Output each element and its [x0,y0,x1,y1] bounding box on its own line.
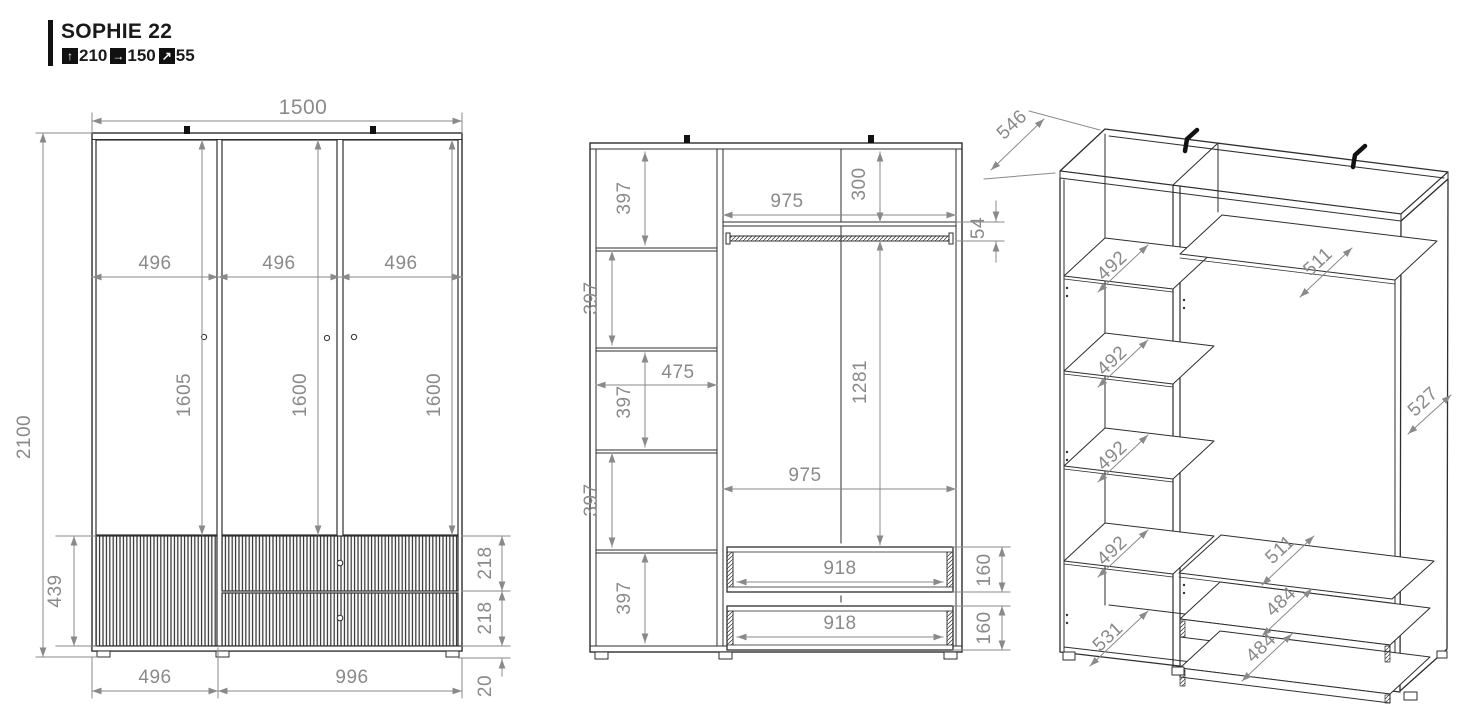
dim-drawer-front-1: 218 [475,546,496,579]
dim-compartment-4: 397 [581,483,602,516]
dim-top-shelf-drop: 300 [849,167,870,200]
drawer-knob [337,560,343,566]
drawer-knob [337,615,343,621]
isometric-view: 546 492 492 492 492 531 511 511 484 484 … [984,106,1451,703]
internal-view: 397 397 397 397 397 475 975 300 54 1281 … [581,135,1010,659]
drawer-slide [947,552,953,587]
foot [1437,651,1447,658]
shelf [596,248,717,251]
dim-door-width-1: 496 [138,253,171,274]
front-view: 1500 2100 496 496 496 1605 1600 1600 439… [14,96,510,698]
fluted-panel-left [96,536,217,646]
wall-bracket-icon [370,126,376,134]
shelf [596,348,717,351]
dim-door-width-3: 496 [384,253,417,274]
dim-drawer-width-1: 918 [823,558,856,579]
foot [1172,667,1184,675]
dim-top-opening-width: 975 [770,191,803,212]
drawer-slide [1385,646,1390,662]
partition [717,149,723,646]
dim-drawer-width-2: 918 [823,613,856,634]
dim-door-height-2: 1600 [290,373,311,417]
dim-compartment-5: 397 [614,581,635,614]
door-knob [324,335,329,340]
foot [1404,692,1417,700]
dim-bottom-right-width: 996 [335,667,368,688]
wall-bracket-icon [684,135,690,143]
dim-door-height-3: 1600 [424,373,445,417]
dim-compartment-1: 397 [614,181,635,214]
dim-opening-width: 975 [788,465,821,486]
dim-drawer-height-2: 160 [974,611,995,644]
door-middle [222,140,337,535]
dim-bottom-left-width: 496 [138,667,171,688]
door-right [343,140,458,535]
foot [719,652,732,659]
drawer-slide [1180,621,1185,637]
door-left [96,140,217,535]
dim-drawer-height-1: 160 [974,553,995,586]
foot [595,652,608,659]
dim-compartment-3: 397 [614,385,635,418]
foot [97,651,110,657]
dim-rail-height: 54 [968,217,989,239]
wall-bracket-icon [184,126,190,134]
foot [944,652,957,659]
dim-compartment-width: 475 [661,362,694,383]
top-shelf [723,222,956,226]
dim-plinth-height: 20 [475,675,496,697]
technical-drawing-page: SOPHIE 22 ↑ 210 → 150 ↗ 55 [0,0,1480,706]
shelf [596,550,717,553]
foot [1063,652,1075,660]
dim-total-height: 2100 [14,415,35,459]
dim-top-depth: 546 [993,106,1032,144]
dim-door-width-2: 496 [262,253,295,274]
dim-compartment-2: 397 [581,281,602,314]
shelf [596,450,717,453]
door-knob [351,334,356,339]
wall-bracket-icon [868,135,874,143]
drawer-slide [727,611,733,645]
dim-base-height: 439 [45,574,66,607]
dim-total-width: 1500 [279,96,328,119]
dim-door-height-1: 1605 [174,373,195,417]
dim-hanging-height: 1281 [850,360,871,404]
hanging-rail [726,236,953,241]
foot [446,651,459,657]
drawer-slide [727,552,733,587]
drawer-slide [1385,695,1390,703]
wardrobe-drawing-svg: 1500 2100 496 496 496 1605 1600 1600 439… [0,0,1480,706]
dim-drawer-front-2: 218 [475,601,496,634]
drawer-slide [947,611,953,645]
